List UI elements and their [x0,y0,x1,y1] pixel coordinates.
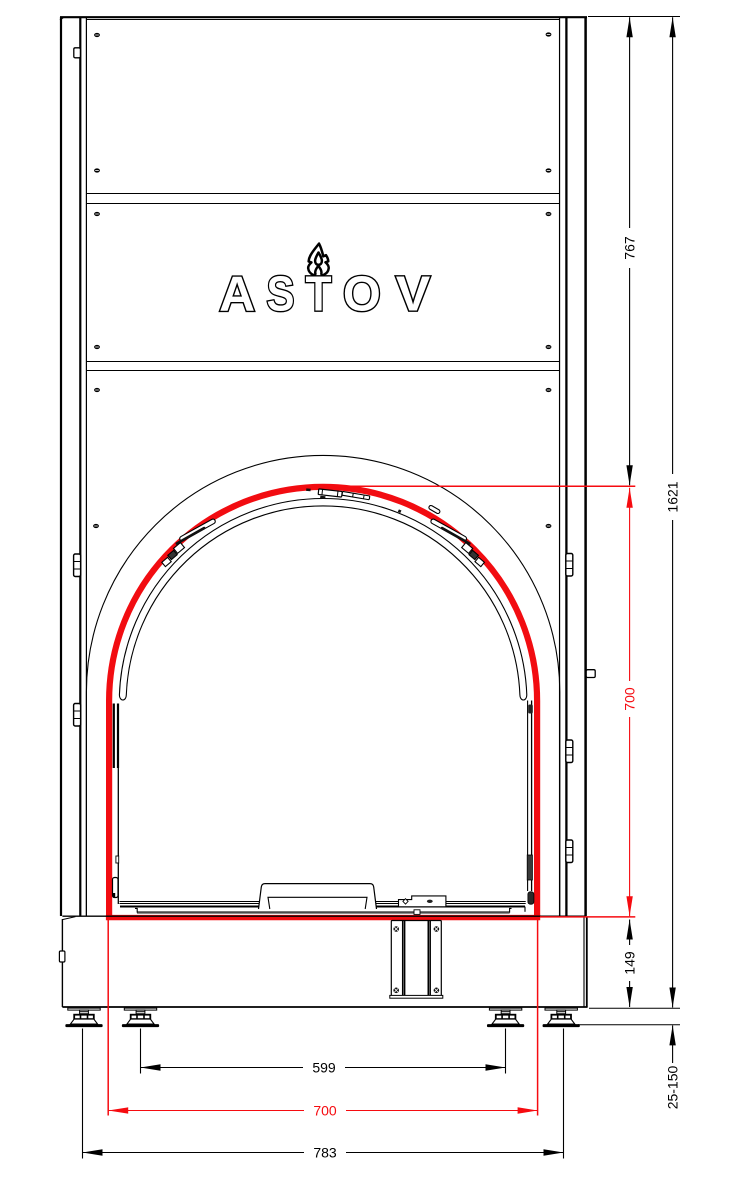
svg-text:700: 700 [313,1103,337,1119]
svg-text:S: S [267,268,295,322]
svg-text:A: A [219,268,255,322]
svg-text:T: T [306,268,332,322]
svg-text:25-150: 25-150 [665,1065,681,1109]
svg-text:V: V [396,268,431,322]
svg-text:149: 149 [622,951,638,975]
svg-text:1621: 1621 [665,481,681,512]
svg-text:783: 783 [313,1145,337,1161]
svg-text:O: O [343,268,381,322]
svg-text:599: 599 [312,1059,336,1075]
svg-text:767: 767 [622,236,638,260]
svg-text:700: 700 [622,687,638,711]
